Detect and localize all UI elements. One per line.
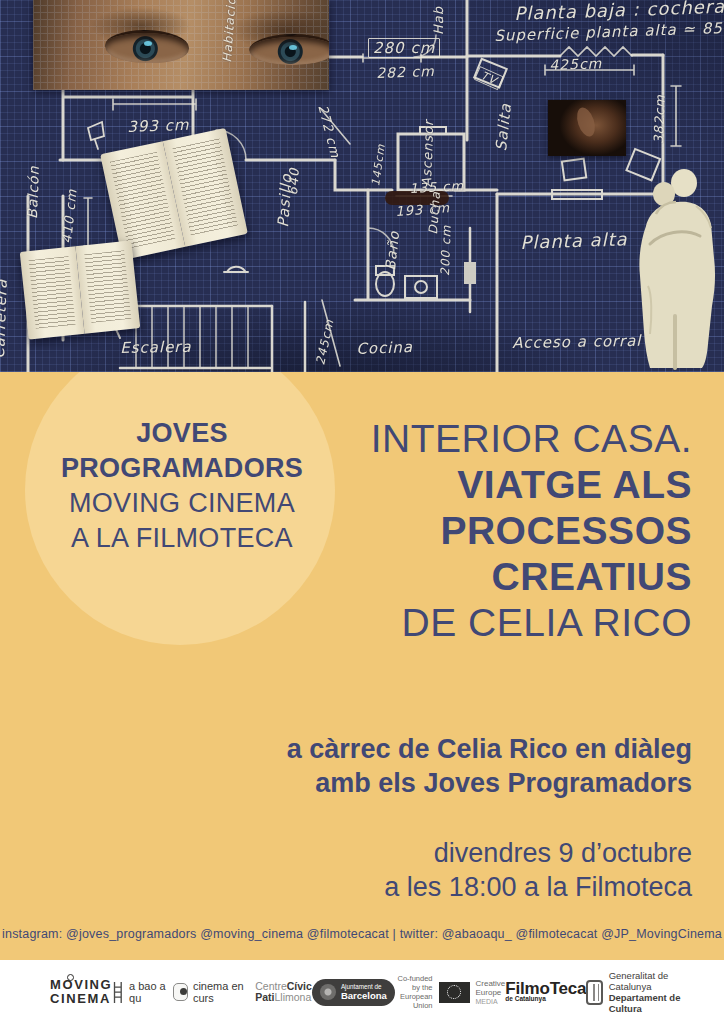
- centre-civic-line: CentreCívic: [255, 980, 312, 992]
- program-title: JOVES PROGRAMADORS MOVING CINEMA A LA FI…: [22, 416, 342, 556]
- datetime-line: divendres 9 d’octubre: [384, 836, 692, 870]
- blueprint-label: Escalera: [120, 338, 192, 357]
- program-title-line: A LA FILMOTECA: [22, 521, 342, 556]
- generalitat-stripes-icon: [586, 980, 602, 1005]
- creative-europe-media: MEDIA: [476, 998, 498, 1005]
- blueprint-label: Salita: [492, 103, 515, 153]
- main-title-line: DE CELIA RICO: [371, 600, 692, 646]
- blueprint-label: 282 cm: [376, 63, 435, 81]
- partner-logos-footer: MOVING CINEMA a bao a qu cinema en curs …: [0, 960, 724, 1024]
- blueprint-label: 272 cm: [315, 103, 343, 160]
- blueprint-label: 425cm: [549, 55, 603, 73]
- a-bao-a-qu-label: a bao a qu: [129, 980, 172, 1004]
- barcelona-emblem-icon: [320, 984, 336, 1000]
- event-subtitle: a càrrec de Celia Rico en diàleg amb els…: [287, 732, 692, 800]
- blueprint-label: Carretera: [0, 279, 11, 360]
- ladder-icon: [112, 979, 124, 1006]
- blueprint-label: TV: [474, 66, 504, 90]
- event-info-section: JOVES PROGRAMADORS MOVING CINEMA A LA FI…: [0, 372, 724, 960]
- event-datetime: divendres 9 d’octubre a les 18:00 a la F…: [384, 836, 692, 904]
- program-title-line: MOVING CINEMA: [22, 486, 342, 521]
- blueprint-label: 280 cm: [368, 38, 440, 58]
- datetime-line: a les 18:00 a la Filmoteca: [384, 870, 692, 904]
- filmoteca-logo: FilmoTeca de Catalunya: [505, 982, 586, 1002]
- a-bao-a-qu-logo: a bao a qu: [112, 979, 172, 1006]
- main-title-line: INTERIOR CASA.: [371, 416, 692, 462]
- eu-cofunded-line: European Union: [400, 992, 433, 1010]
- page-title: INTERIOR CASA. VIATGE ALS PROCESSOS CREA…: [371, 416, 692, 646]
- blueprint-label: Baño: [382, 229, 402, 270]
- blueprint-label: 145cm: [369, 143, 388, 187]
- blueprint-label: 193 cm: [395, 200, 451, 219]
- blueprint-label: Cocina: [356, 338, 413, 358]
- eu-flag-icon: [439, 982, 470, 1003]
- blueprint-labels: Planta baja : cochera.Superficie planta …: [0, 0, 724, 372]
- event-poster: Planta baja : cochera.Superficie planta …: [0, 0, 724, 1024]
- blueprint-label: Acceso a corral: [512, 332, 642, 352]
- subtitle-line: a càrrec de Celia Rico en diàleg: [287, 732, 692, 766]
- blueprint-collage: Planta baja : cochera.Superficie planta …: [0, 0, 724, 372]
- moving-cinema-ring-icon: [67, 974, 74, 981]
- blueprint-label: Hab: [431, 6, 446, 35]
- main-title-line: PROCESSOS: [371, 508, 692, 554]
- pati-llimona-line: PatiLlimona: [255, 991, 311, 1003]
- blueprint-label: Planta alta: [520, 228, 628, 253]
- blueprint-label: 200 cm: [438, 225, 454, 276]
- moving-cinema-line: MOVING: [50, 977, 112, 992]
- subtitle-line: amb els Joves Programadors: [287, 766, 692, 800]
- cinema-en-curs-label: cinema en curs: [193, 980, 255, 1004]
- moving-cinema-line: CINEMA: [50, 991, 111, 1006]
- barcelona-line: Barcelona: [341, 991, 387, 1001]
- main-title-line: CREATIUS: [371, 554, 692, 600]
- main-title-line: VIATGE ALS: [371, 462, 692, 508]
- cinema-en-curs-icon: [173, 983, 188, 1001]
- creative-europe-line: Creative: [476, 979, 506, 988]
- blueprint-label: Ascensor: [419, 119, 436, 187]
- departament-line: Departament de Cultura: [609, 992, 698, 1014]
- embracing-couple-sculpture: [626, 166, 724, 372]
- creative-europe-line: Europe: [476, 988, 502, 997]
- program-title-line: JOVES: [22, 416, 342, 451]
- blueprint-label: 245cm: [313, 318, 336, 366]
- blueprint-label: Balcón: [24, 165, 42, 219]
- blueprint-label: Habitación: [220, 0, 239, 63]
- moving-cinema-logo: MOVING CINEMA: [50, 978, 112, 1006]
- blueprint-label: 382cm: [651, 94, 668, 144]
- blueprint-label: Pasillo: [274, 173, 296, 228]
- generalitat-line: Generalitat de Catalunya: [609, 970, 669, 992]
- blueprint-label: 410 cm: [59, 188, 80, 244]
- blueprint-label: 393 cm: [127, 116, 190, 136]
- program-title-line: PROGRAMADORS: [22, 451, 342, 486]
- ajuntament-barcelona-logo: Ajuntament de Barcelona: [312, 979, 395, 1006]
- eu-cofunded-line: Co-funded by the: [397, 974, 432, 992]
- generalitat-logo: Generalitat de Catalunya Departament de …: [586, 970, 698, 1014]
- social-handles: instagram: @joves_programadors @moving_c…: [0, 927, 724, 941]
- cinema-en-curs-logo: cinema en curs: [173, 980, 256, 1004]
- centre-civic-pati-llimona-logo: CentreCívic PatiLlimona: [255, 981, 312, 1004]
- creative-europe-logo: Co-funded by the European Union Creative…: [395, 974, 506, 1010]
